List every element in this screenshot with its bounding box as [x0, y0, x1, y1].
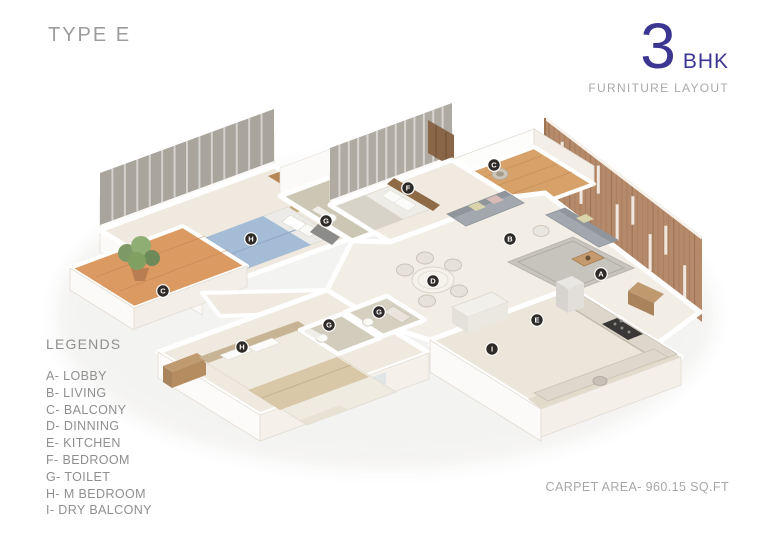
room-marker-lobby: A — [595, 268, 608, 281]
room-marker-m-bedroom: H — [245, 233, 258, 246]
room-marker-letter: G — [323, 217, 329, 226]
legend-title: LEGENDS — [46, 336, 152, 352]
room-marker-kitchen: E — [531, 314, 544, 327]
room-marker-letter: F — [406, 184, 411, 193]
legend-list: A- LOBBY B- LIVING C- BALCONY D- DINNING… — [46, 369, 152, 520]
room-marker-letter: E — [534, 316, 539, 325]
room-marker-letter: G — [326, 321, 332, 330]
room-marker-letter: B — [507, 235, 513, 244]
carpet-area-note: CARPET AREA- 960.15 SQ.FT — [546, 480, 729, 494]
legend-item: D- DINNING — [46, 419, 152, 436]
room-marker-dry-balcony: I — [486, 343, 499, 356]
room-marker-living: B — [504, 233, 517, 246]
room-marker-letter: H — [248, 235, 253, 244]
room-marker-toilet: G — [323, 319, 336, 332]
legend-item: I- DRY BALCONY — [46, 503, 152, 520]
room-marker-toilet: G — [320, 215, 333, 228]
legend-item: B- LIVING — [46, 386, 152, 403]
legend-item: E- KITCHEN — [46, 436, 152, 453]
page: TYPE E 3 BHK FURNITURE LAYOUT — [0, 0, 768, 538]
fridge — [556, 276, 584, 313]
legend-item: H- M BEDROOM — [46, 487, 152, 504]
room-marker-letter: H — [239, 343, 244, 352]
room-marker-letter: A — [598, 270, 604, 279]
room-marker-letter: C — [160, 287, 166, 296]
legend-item: F- BEDROOM — [46, 453, 152, 470]
legend-item: A- LOBBY — [46, 369, 152, 386]
room-marker-bedroom: F — [402, 182, 415, 195]
room-marker-letter: I — [491, 345, 493, 354]
room-marker-letter: C — [491, 161, 497, 170]
kitchen-sink — [593, 377, 607, 386]
room-marker-m-bedroom: H — [236, 341, 249, 354]
room-marker-balcony: C — [488, 159, 501, 172]
room-marker-balcony: C — [157, 285, 170, 298]
room-marker-letter: D — [430, 277, 436, 286]
legend-item: G- TOILET — [46, 470, 152, 487]
room-marker-letter: G — [376, 308, 382, 317]
legend-item: C- BALCONY — [46, 403, 152, 420]
legend: LEGENDS A- LOBBY B- LIVING C- BALCONY D-… — [46, 336, 152, 520]
room-marker-dinning: D — [427, 275, 440, 288]
lounge-chair — [533, 226, 549, 237]
room-marker-toilet: G — [373, 306, 386, 319]
